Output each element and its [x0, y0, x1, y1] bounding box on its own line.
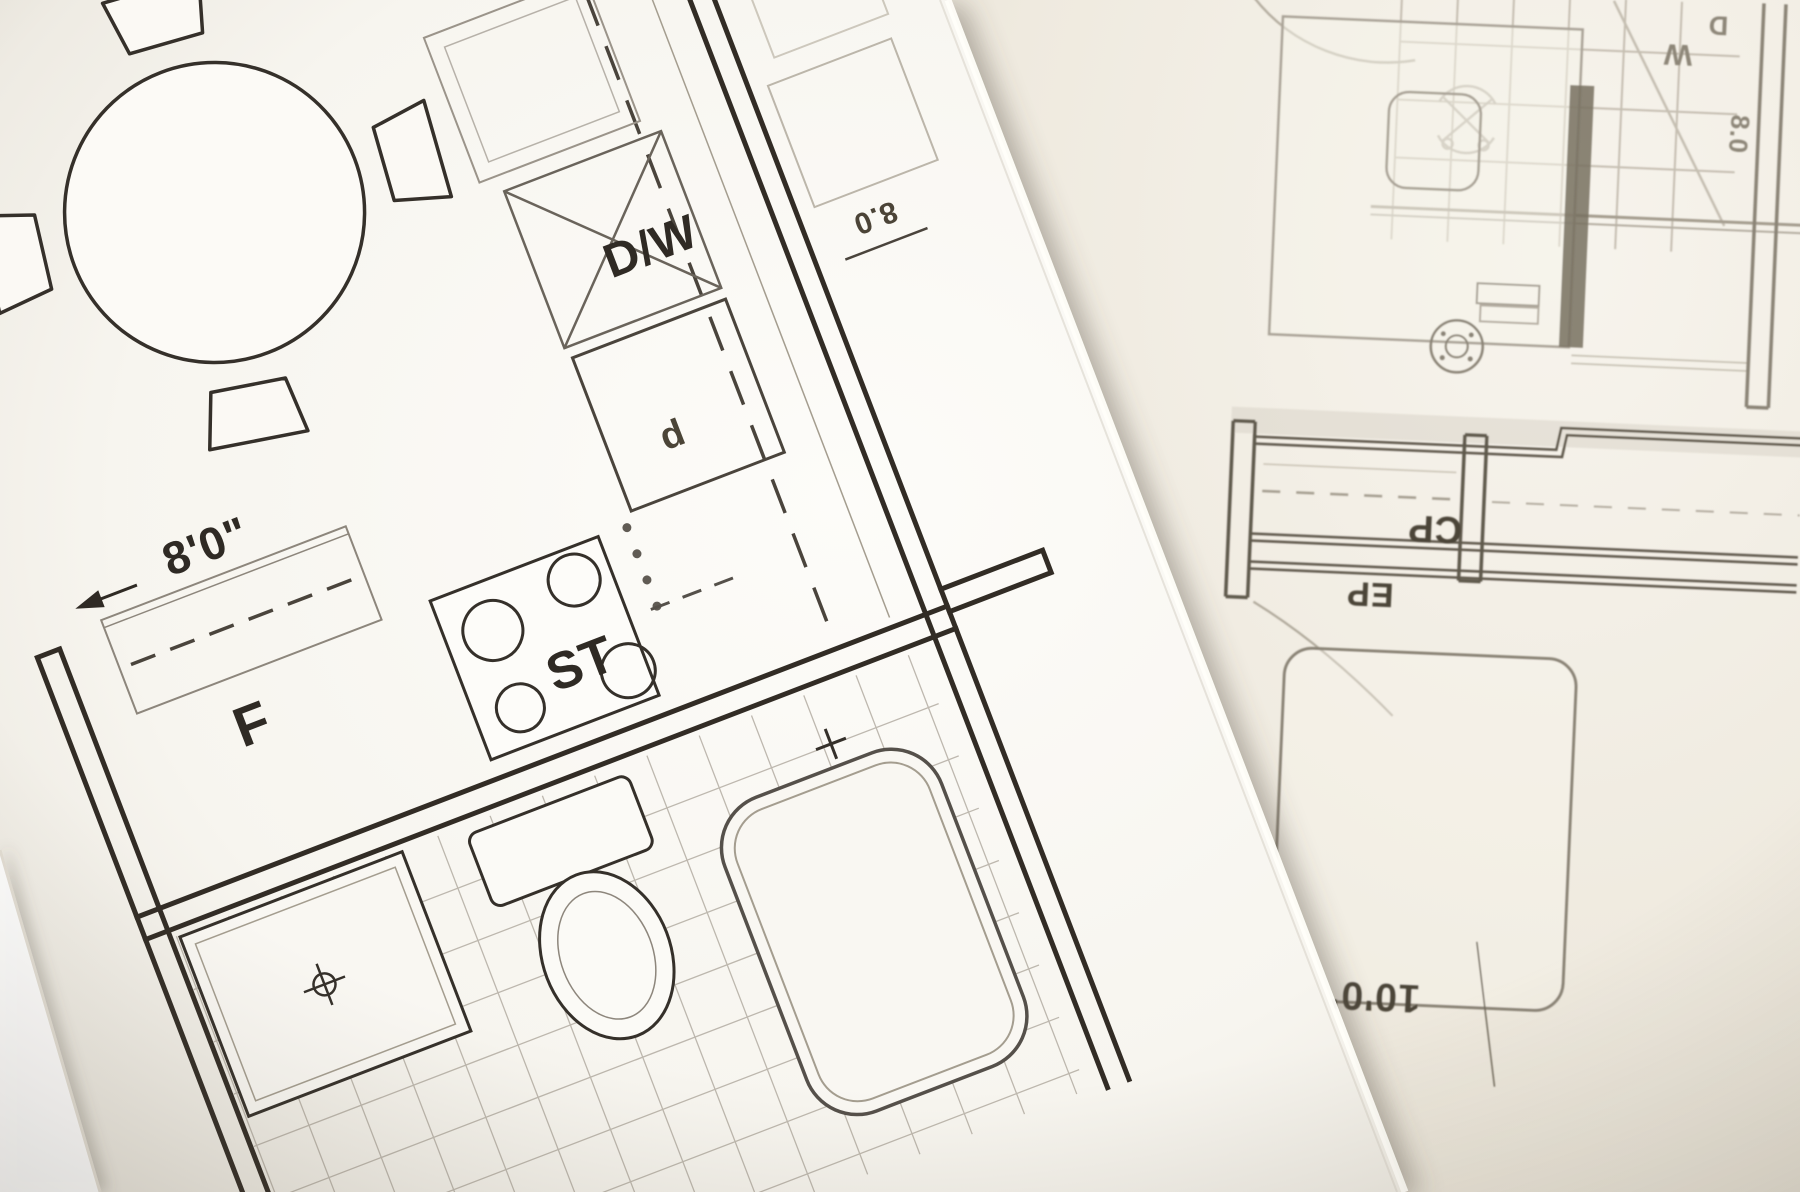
blueprint-photo-svg: W D 8.0 — [0, 0, 1800, 1192]
blueprint-photo: W D 8.0 — [0, 0, 1800, 1192]
vignette-overlay — [0, 0, 1800, 1192]
